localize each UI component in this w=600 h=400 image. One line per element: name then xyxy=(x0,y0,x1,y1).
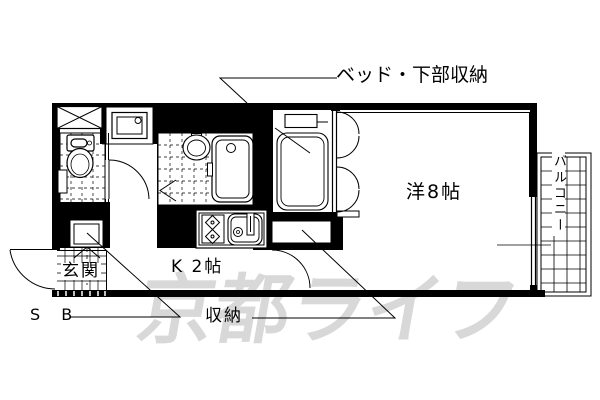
storage-label: 収納 xyxy=(205,308,243,325)
kitchen-label: K 2帖 xyxy=(171,259,223,276)
bed-bifold-doors xyxy=(337,112,359,212)
bed xyxy=(275,115,328,211)
toilet-door xyxy=(106,133,150,210)
room-door xyxy=(270,250,310,289)
western-room-label: 洋8帖 xyxy=(406,183,462,202)
balcony-window xyxy=(532,197,536,290)
bed-partition-wall xyxy=(333,110,360,217)
kitchen-sink xyxy=(228,213,262,245)
bed-storage-leader xyxy=(220,78,337,103)
bed-pillow xyxy=(285,115,317,128)
pipe-space-box xyxy=(57,107,102,129)
entrance-label: 玄関 xyxy=(61,263,101,280)
bed-storage-label: ベッド・下部収納 xyxy=(336,66,488,85)
floorplan-drawing xyxy=(0,0,600,400)
shoe-box-label: S B xyxy=(30,307,80,323)
floorplan-image: ベッド・下部収納 洋8帖 K 2帖 玄関 収納 S B バルコニー 京都ライフ xyxy=(0,0,600,400)
balcony-label: バルコニー xyxy=(552,152,565,236)
bathtub xyxy=(208,136,254,202)
front-door xyxy=(10,250,57,290)
closet-box xyxy=(272,221,331,243)
toilet xyxy=(58,135,94,193)
